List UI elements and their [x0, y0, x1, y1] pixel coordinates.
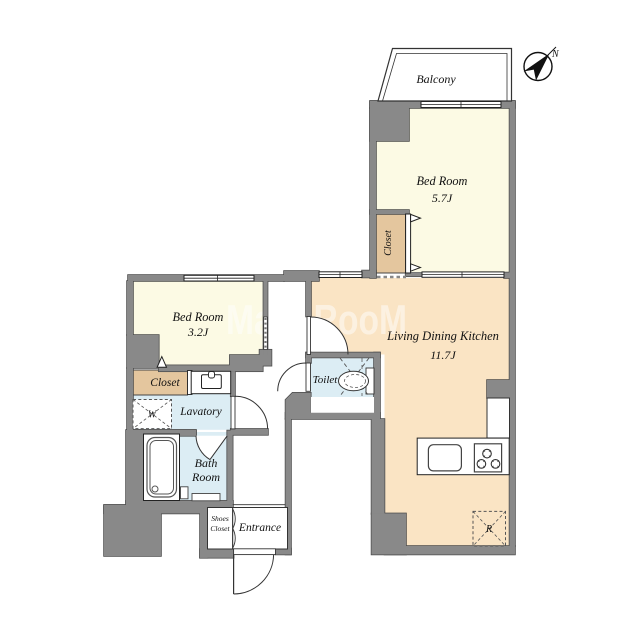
svg-text:Bed Room: Bed Room — [173, 310, 224, 324]
svg-text:N: N — [551, 49, 560, 60]
svg-text:Balcony: Balcony — [416, 72, 456, 86]
svg-text:Room: Room — [191, 470, 220, 484]
svg-text:MadoRooM: MadoRooM — [226, 298, 407, 344]
svg-text:3.2J: 3.2J — [187, 325, 209, 339]
svg-text:Shoes: Shoes — [211, 514, 229, 523]
svg-text:Bed Room: Bed Room — [417, 174, 468, 188]
svg-text:Closet: Closet — [150, 377, 180, 389]
svg-text:Toilet: Toilet — [313, 374, 339, 386]
svg-text:Closet: Closet — [383, 230, 394, 256]
svg-text:Entrance: Entrance — [238, 522, 281, 534]
svg-text:Lavatory: Lavatory — [179, 406, 222, 418]
svg-text:Living Dining Kitchen: Living Dining Kitchen — [386, 329, 499, 343]
svg-text:5.7J: 5.7J — [432, 191, 453, 205]
svg-text:Closet: Closet — [210, 524, 230, 533]
svg-text:R: R — [485, 524, 492, 535]
svg-text:Bath: Bath — [195, 456, 218, 470]
svg-text:11.7J: 11.7J — [430, 348, 456, 362]
